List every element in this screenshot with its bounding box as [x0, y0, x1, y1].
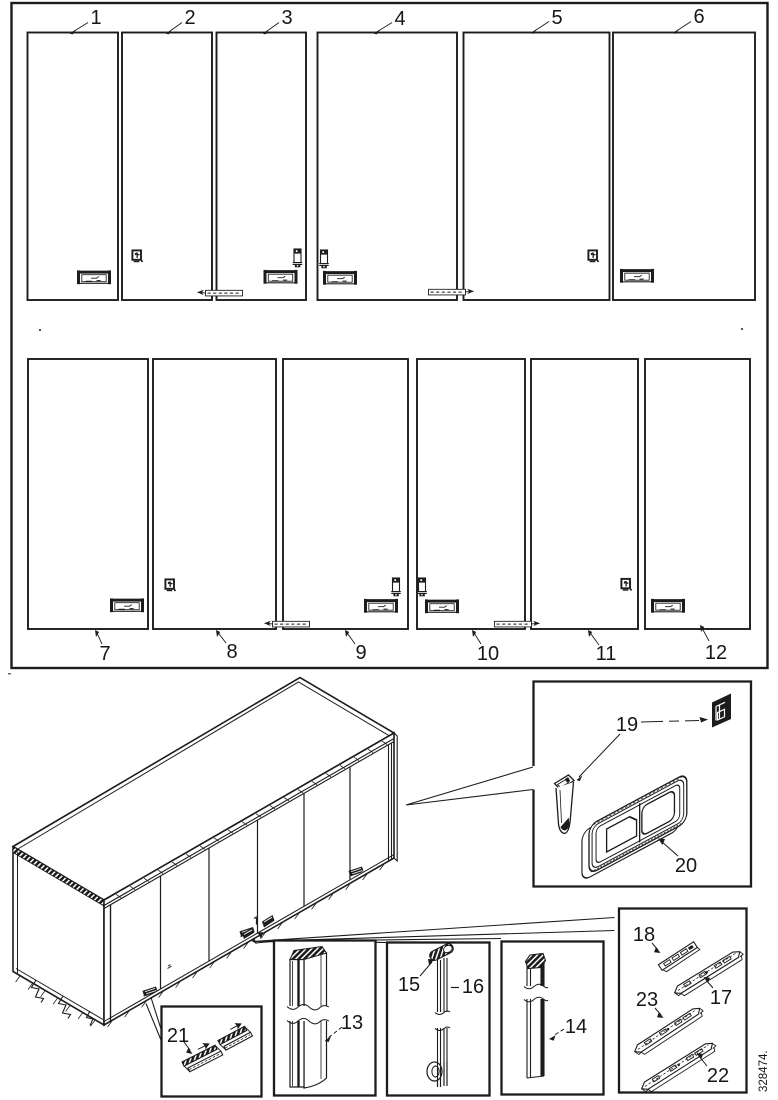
- svg-text:17: 17: [710, 987, 732, 1009]
- svg-text:13: 13: [341, 1012, 363, 1034]
- svg-text:8: 8: [226, 641, 237, 663]
- svg-text:18: 18: [633, 924, 655, 946]
- svg-text:11: 11: [596, 643, 617, 665]
- svg-text:15: 15: [398, 974, 420, 996]
- svg-text:2: 2: [184, 7, 195, 29]
- svg-text:12: 12: [705, 642, 727, 664]
- svg-text:5: 5: [551, 7, 562, 29]
- svg-text:19: 19: [616, 714, 638, 736]
- svg-text:7: 7: [99, 643, 110, 665]
- svg-text:1: 1: [90, 7, 101, 29]
- svg-text:3: 3: [281, 7, 292, 29]
- svg-text:14: 14: [565, 1016, 587, 1038]
- svg-text:20: 20: [675, 855, 697, 877]
- svg-text:10: 10: [477, 643, 499, 665]
- svg-text:6: 6: [693, 6, 704, 28]
- svg-text:22: 22: [707, 1065, 729, 1087]
- svg-text:16: 16: [462, 976, 484, 998]
- svg-text:23: 23: [636, 989, 658, 1011]
- svg-text:4: 4: [394, 8, 405, 30]
- svg-text:328474.: 328474.: [758, 1050, 770, 1092]
- svg-text:9: 9: [355, 642, 366, 664]
